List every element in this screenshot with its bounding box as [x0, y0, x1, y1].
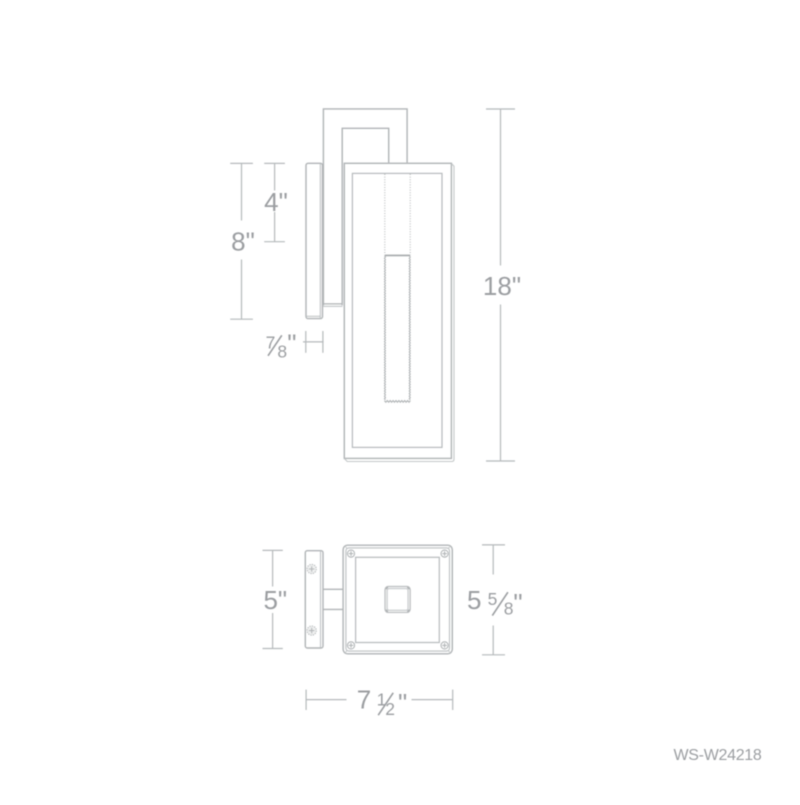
svg-text:": " — [398, 688, 407, 718]
svg-text:5: 5 — [488, 589, 498, 609]
svg-text:7: 7 — [266, 332, 276, 352]
svg-text:7: 7 — [357, 685, 371, 715]
svg-text:8: 8 — [504, 598, 514, 618]
svg-text:": " — [287, 329, 296, 359]
svg-text:5": 5" — [263, 585, 287, 615]
svg-text:8: 8 — [277, 342, 287, 362]
svg-text:5: 5 — [467, 585, 481, 615]
svg-text:8": 8" — [231, 227, 255, 257]
svg-text:4": 4" — [264, 187, 288, 217]
svg-text:2: 2 — [385, 699, 395, 719]
svg-text:WS-W24218: WS-W24218 — [674, 747, 762, 764]
svg-text:": " — [513, 588, 522, 618]
svg-text:18": 18" — [483, 271, 521, 301]
